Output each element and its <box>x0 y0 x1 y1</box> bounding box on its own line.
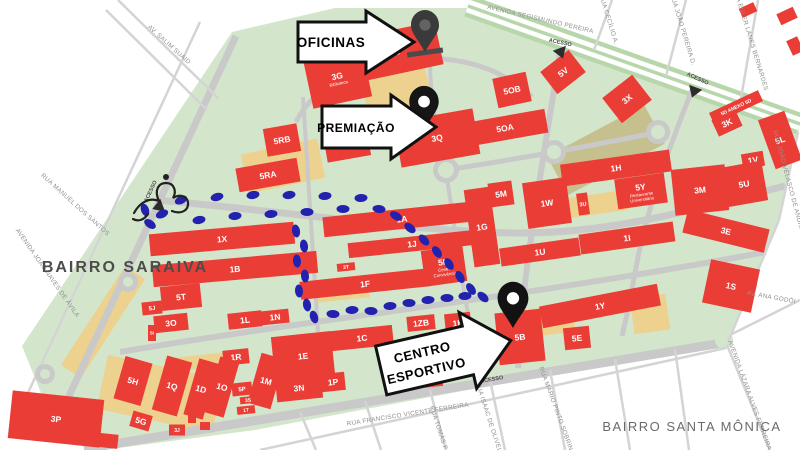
route-start-dot-icon <box>163 174 169 180</box>
building-label: 3U <box>579 202 587 209</box>
street-label: AV. ANA GODÓI <box>746 288 797 306</box>
building-3j: 3J <box>169 425 185 436</box>
building-label: 3Q <box>431 132 444 144</box>
building-1n: 1N <box>260 309 289 326</box>
building-3m: 3M <box>671 164 730 215</box>
building-label: 1G <box>476 221 489 233</box>
building-label: 1L <box>240 315 251 326</box>
building-label: 5B <box>514 332 526 343</box>
building-3o: 3O <box>153 313 189 333</box>
road <box>118 0 219 99</box>
building-5i: 5I <box>148 325 156 341</box>
building-label: 1H <box>610 162 622 173</box>
building-1zb: 1ZB <box>406 314 435 332</box>
campus-map: 5S3GBiblioteca3Q3D5OB5OA5V3X5D ANEXO 5D3… <box>0 0 800 450</box>
building-5j: 5J <box>141 300 162 315</box>
building-label: 5U <box>738 178 750 190</box>
area-label: BAIRRO SANTA MÔNICA <box>602 419 781 434</box>
building-label: 5P <box>238 387 246 394</box>
footprint-trail-dot <box>403 299 416 307</box>
building-label: 1P <box>327 377 339 388</box>
footprint-trail-dot <box>337 205 350 213</box>
roundabout-center <box>40 369 50 379</box>
building-3n: 3N <box>275 374 323 403</box>
neighborhood-street <box>675 349 689 450</box>
building-5p: 5P <box>231 381 252 396</box>
building-unlabeled <box>776 7 797 25</box>
building-label: 1J <box>407 239 418 250</box>
building-label: 5T <box>176 291 188 302</box>
street-label: RUA ISAAC DE OLIVEIRA <box>474 381 506 450</box>
building-label: 1U <box>534 246 546 257</box>
building-unlabeled <box>200 422 210 430</box>
building-label: 1B <box>229 264 241 275</box>
building-label: 1E <box>297 351 309 362</box>
street-label: RUA MÁRIO PINTO SOBRINHO <box>537 365 579 450</box>
callout-label: OFICINAS <box>297 35 366 50</box>
roundabout-center <box>438 162 454 178</box>
building-label: 1C <box>356 333 368 344</box>
building-label: 1T <box>243 408 249 415</box>
building-label: 5E <box>571 333 583 344</box>
neighborhood-street <box>615 359 630 450</box>
building-unlabeled <box>188 415 196 423</box>
building-5t: 5T <box>160 283 202 311</box>
building-label: 5J <box>148 306 155 313</box>
building-5e: 5E <box>563 326 591 351</box>
street-label: RUA MANUEL DOS SANTOS <box>39 172 111 237</box>
area-label: BAIRRO SARAIVA <box>42 259 208 276</box>
footprint-trail-dot <box>301 208 314 216</box>
building-label: 3N <box>293 383 305 394</box>
building-label: 3P <box>50 414 62 425</box>
building-label: 1ZB <box>412 317 429 329</box>
building-label: 5M <box>494 188 507 200</box>
building-label: 1I <box>623 233 631 244</box>
building-label: 1F <box>360 279 371 290</box>
building-label: 1N <box>269 312 281 323</box>
map-canvas: 5S3GBiblioteca3Q3D5OB5OA5V3X5D ANEXO 5D3… <box>0 0 800 450</box>
roundabout-center <box>651 125 665 139</box>
roundabout-center <box>547 145 561 159</box>
building-5rb: 5RB <box>263 123 301 156</box>
building-label: 3T <box>343 265 349 272</box>
footprint-trail-dot <box>441 294 454 302</box>
building-label: 3O <box>165 317 178 328</box>
building-1w: 1W <box>522 177 572 229</box>
building-unlabeled <box>786 36 800 56</box>
street-label: AV. SALIM SUAID <box>146 24 192 66</box>
building-label: 1W <box>540 197 555 209</box>
callout-label: PREMIAÇÃO <box>317 120 395 135</box>
building-label: 5I <box>150 331 154 336</box>
building-1p: 1P <box>320 372 346 392</box>
roundabout-center <box>123 277 133 287</box>
building-label: 3J <box>174 428 180 434</box>
building-label: 3M <box>694 184 707 195</box>
building-label: 1X <box>216 234 228 245</box>
